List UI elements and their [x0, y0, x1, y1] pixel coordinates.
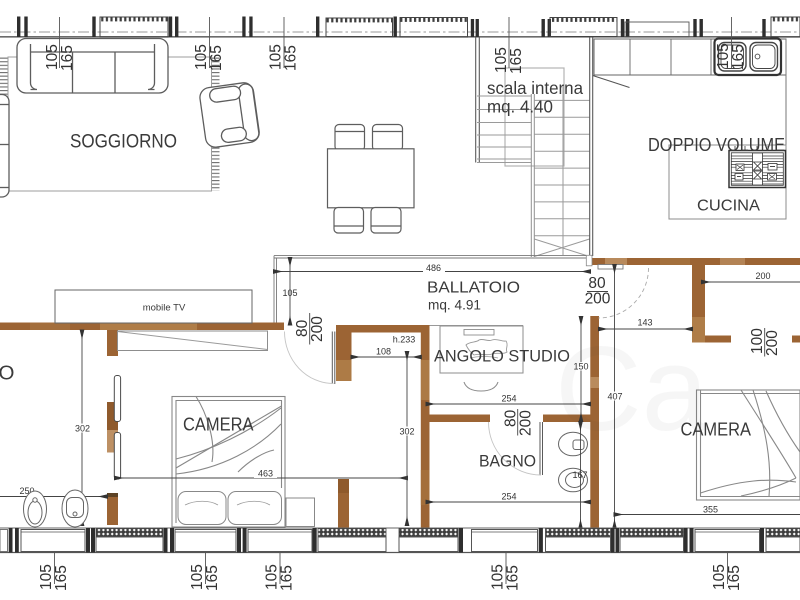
svg-text:302: 302 [75, 424, 90, 434]
svg-text:165: 165 [53, 565, 70, 591]
svg-text:mobile TV: mobile TV [143, 303, 186, 314]
svg-text:Ca: Ca [555, 322, 709, 456]
svg-text:DOPPIO VOLUME: DOPPIO VOLUME [648, 135, 785, 155]
svg-text:165: 165 [59, 45, 76, 71]
svg-text:200: 200 [764, 330, 781, 356]
svg-text:165: 165 [283, 45, 300, 71]
svg-text:80: 80 [588, 275, 606, 292]
svg-text:302: 302 [399, 427, 414, 437]
svg-text:165: 165 [726, 565, 743, 591]
svg-text:CAMERA: CAMERA [183, 414, 254, 435]
svg-text:ANGOLO STUDIO: ANGOLO STUDIO [434, 347, 570, 366]
svg-text:165: 165 [279, 565, 296, 591]
svg-text:254: 254 [501, 492, 516, 502]
svg-text:scala interna: scala interna [487, 78, 583, 98]
svg-text:CUCINA: CUCINA [697, 198, 761, 215]
svg-text:SOGGIORNO: SOGGIORNO [70, 131, 177, 153]
svg-text:200: 200 [518, 410, 535, 436]
svg-text:463: 463 [258, 469, 273, 479]
svg-text:165: 165 [730, 44, 747, 70]
svg-text:165: 165 [505, 565, 522, 591]
svg-text:165: 165 [508, 48, 525, 74]
svg-text:h.233: h.233 [393, 335, 416, 345]
svg-text:BAGNO: BAGNO [479, 452, 536, 471]
svg-text:355: 355 [703, 505, 718, 515]
svg-text:486: 486 [426, 263, 441, 273]
svg-text:254: 254 [501, 394, 516, 404]
svg-text:108: 108 [376, 347, 391, 357]
svg-text:200: 200 [309, 316, 326, 342]
svg-text:200: 200 [755, 271, 770, 281]
svg-text:O: O [0, 362, 14, 385]
svg-text:mq. 4.91: mq. 4.91 [428, 298, 481, 313]
svg-text:167: 167 [572, 470, 587, 480]
svg-text:165: 165 [208, 45, 225, 71]
svg-text:BALLATOIO: BALLATOIO [427, 280, 520, 297]
svg-text:mq. 4.40: mq. 4.40 [487, 97, 553, 117]
svg-text:105: 105 [282, 288, 297, 298]
svg-text:165: 165 [204, 565, 221, 591]
svg-text:200: 200 [585, 291, 611, 308]
